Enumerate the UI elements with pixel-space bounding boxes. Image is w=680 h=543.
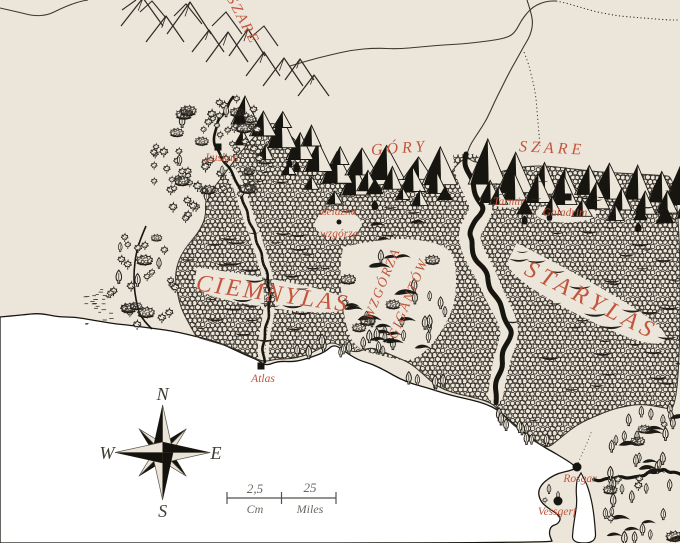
svg-text:Galadrim: Galadrim (543, 207, 588, 219)
svg-text:N: N (156, 384, 170, 404)
svg-text:E: E (210, 443, 222, 463)
svg-text:SZARE: SZARE (519, 138, 586, 158)
svg-text:W: W (100, 443, 117, 463)
svg-text:Vessgerf: Vessgerf (538, 506, 578, 518)
svg-text:Tarmir: Tarmir (493, 196, 525, 208)
svg-text:Atlas: Atlas (250, 373, 275, 385)
svg-text:Zelazne: Zelazne (320, 206, 356, 218)
svg-text:Miles: Miles (296, 502, 324, 516)
svg-text:Cm: Cm (247, 502, 264, 516)
svg-text:25: 25 (304, 480, 318, 495)
svg-text:wzgórze: wzgórze (320, 228, 358, 240)
svg-text:Luskan: Luskan (204, 152, 238, 164)
svg-text:Rosgar: Rosgar (562, 473, 597, 485)
svg-text:2,5: 2,5 (247, 481, 264, 496)
svg-text:S: S (158, 501, 167, 521)
